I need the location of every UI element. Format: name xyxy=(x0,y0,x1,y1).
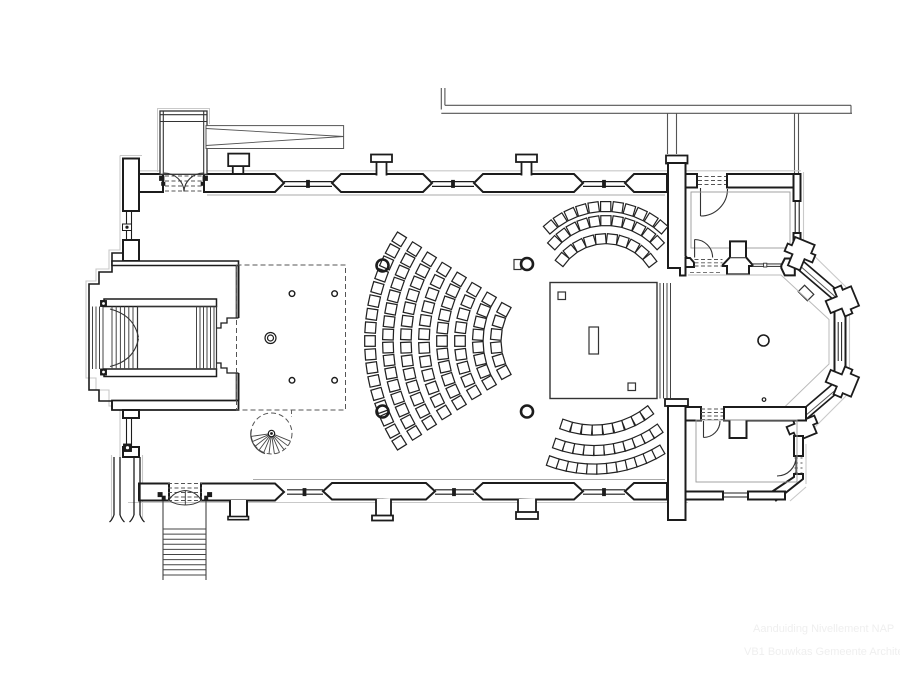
svg-text:VB1 Bouwkas Gemeente Archite: VB1 Bouwkas Gemeente Architect xyxy=(744,646,900,658)
svg-text:Aanduiding Nivellement NAP: Aanduiding Nivellement NAP xyxy=(753,623,894,635)
